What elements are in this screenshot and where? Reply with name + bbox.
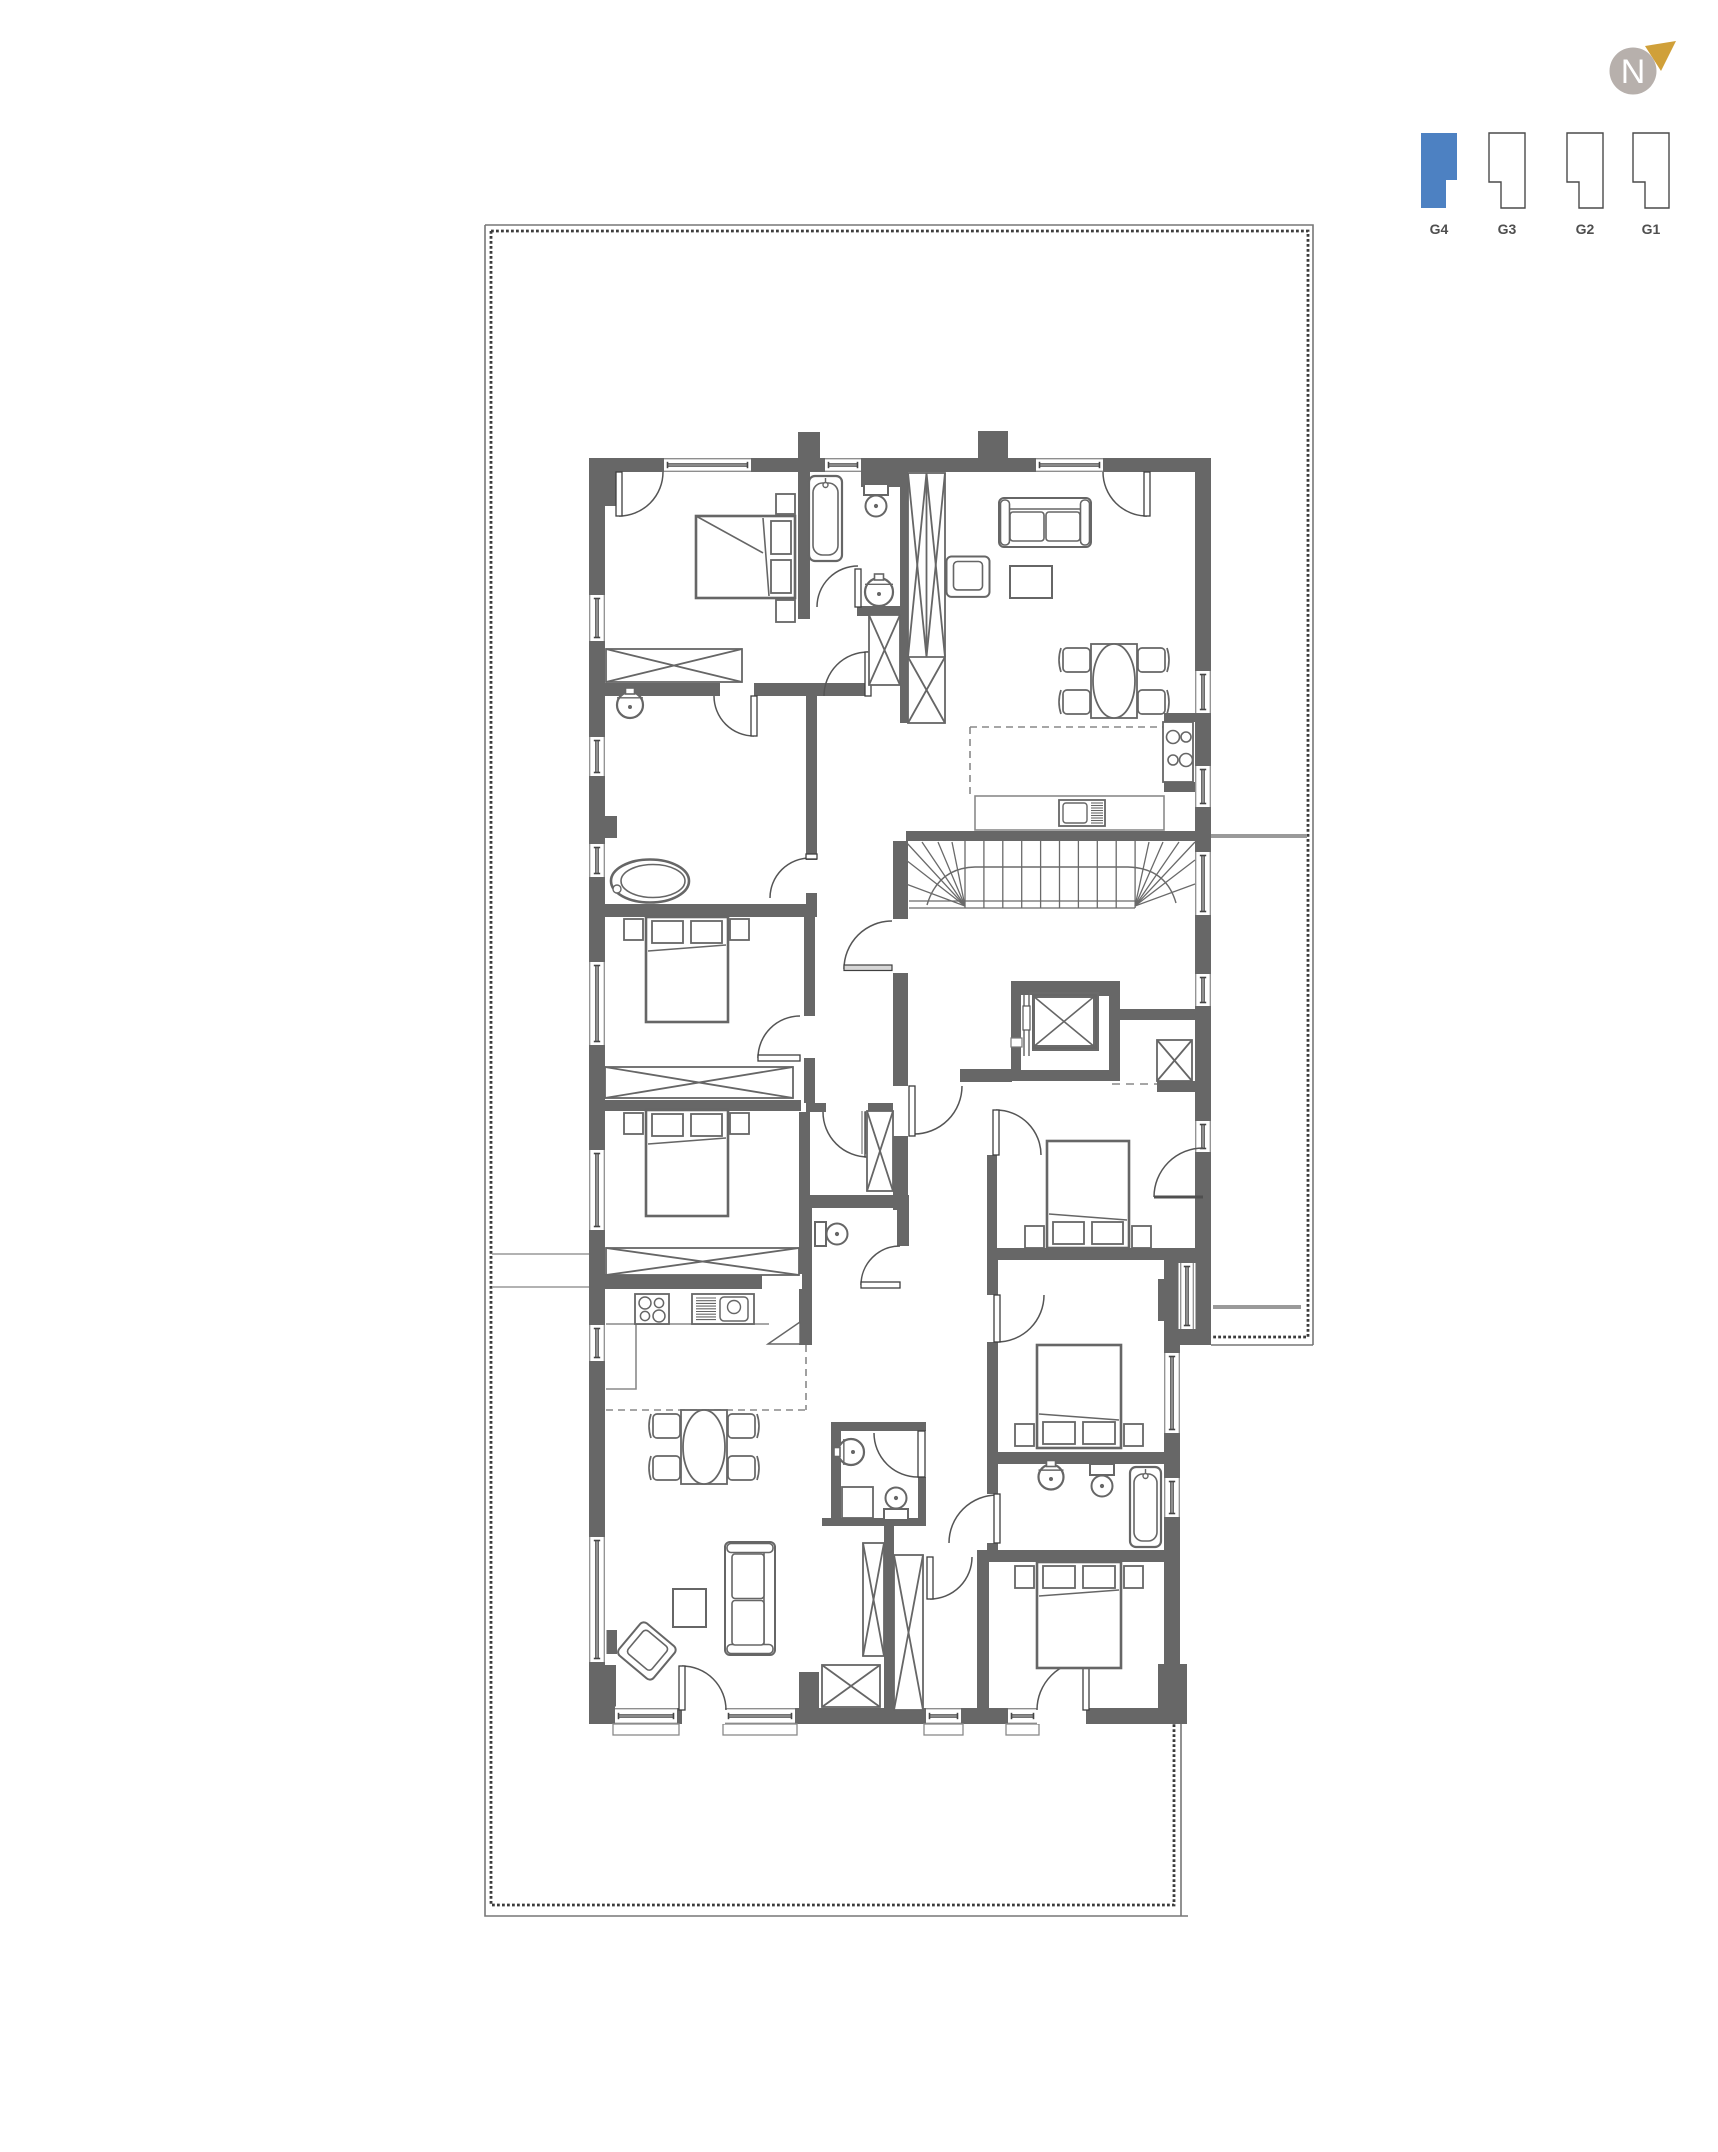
svg-text:N: N bbox=[1621, 53, 1646, 91]
svg-text:G4: G4 bbox=[1430, 221, 1449, 237]
svg-text:G2: G2 bbox=[1576, 221, 1595, 237]
svg-text:G3: G3 bbox=[1498, 221, 1517, 237]
svg-text:G1: G1 bbox=[1642, 221, 1661, 237]
